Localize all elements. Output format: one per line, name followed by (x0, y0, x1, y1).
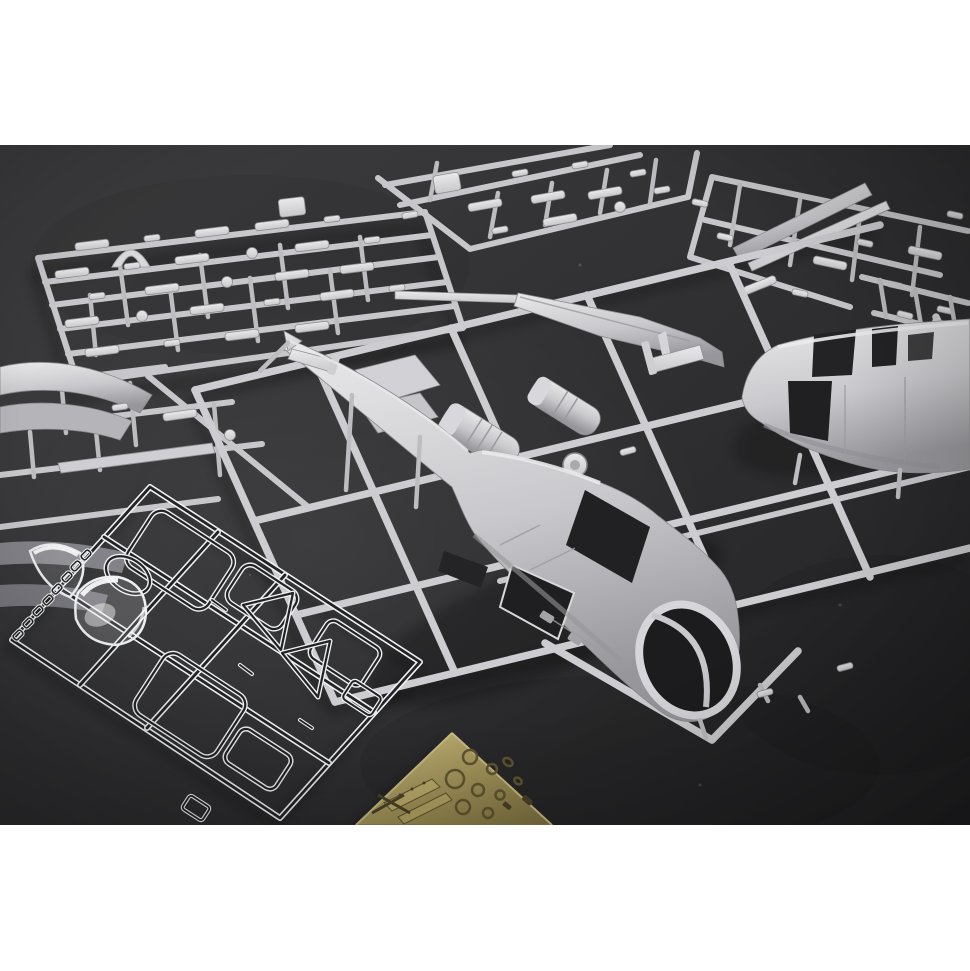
vignette-overlay (0, 145, 970, 825)
product-photo (0, 145, 970, 825)
bottom-margin (0, 825, 970, 971)
photo-page (0, 0, 970, 971)
top-margin (0, 0, 970, 145)
